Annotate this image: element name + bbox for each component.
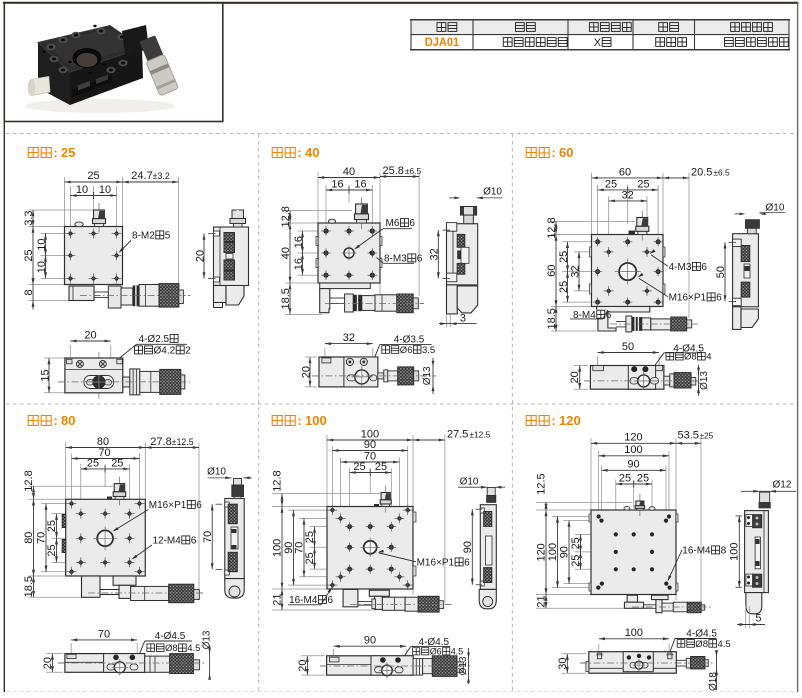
svg-text:5: 5 [755, 613, 761, 625]
svg-text:4.5: 4.5 [451, 647, 464, 657]
svg-text:Ø10: Ø10 [483, 187, 502, 198]
svg-text:120: 120 [624, 432, 642, 444]
svg-text:Ø10: Ø10 [766, 202, 785, 213]
svg-text:5: 5 [165, 231, 171, 242]
svg-text:12.5: 12.5 [536, 473, 548, 494]
svg-text:M6: M6 [386, 218, 400, 229]
svg-text:25: 25 [111, 457, 123, 469]
svg-text:24.7: 24.7 [131, 170, 152, 182]
svg-text:6: 6 [191, 536, 197, 547]
svg-text:6: 6 [716, 293, 722, 304]
svg-text:40: 40 [343, 166, 355, 178]
svg-text:6: 6 [464, 558, 470, 569]
svg-text:16-M4: 16-M4 [682, 546, 711, 557]
svg-text:±25: ±25 [700, 431, 714, 441]
svg-text:4: 4 [706, 352, 711, 363]
svg-text:21: 21 [272, 594, 284, 606]
svg-text:100: 100 [272, 539, 284, 557]
svg-text:25: 25 [61, 145, 75, 160]
svg-text::: : [552, 146, 556, 160]
svg-text:Ø13: Ø13 [458, 656, 469, 675]
svg-text:10: 10 [36, 261, 48, 273]
svg-text:60: 60 [619, 166, 631, 178]
svg-text:25: 25 [570, 537, 582, 549]
svg-text:±12.5: ±12.5 [172, 437, 194, 447]
svg-text:90: 90 [627, 459, 639, 471]
svg-text:8: 8 [721, 546, 727, 557]
svg-text:Ø12: Ø12 [773, 480, 792, 491]
svg-text:10: 10 [36, 239, 48, 251]
svg-text:25: 25 [637, 178, 649, 190]
svg-text:3.3: 3.3 [23, 211, 35, 226]
svg-text:8-M2: 8-M2 [132, 231, 155, 242]
svg-text:6: 6 [701, 262, 707, 273]
svg-text:±3.2: ±3.2 [153, 171, 170, 181]
svg-text::: : [54, 414, 58, 428]
svg-text:18.5: 18.5 [280, 288, 292, 309]
svg-text:Ø13: Ø13 [422, 366, 433, 385]
svg-text:12-M4: 12-M4 [153, 536, 182, 547]
svg-text:16: 16 [354, 179, 366, 191]
svg-text:4.5: 4.5 [187, 643, 200, 654]
svg-text:30: 30 [557, 658, 569, 670]
svg-text:20: 20 [194, 250, 206, 262]
svg-text:25: 25 [353, 461, 365, 473]
svg-text:70: 70 [98, 447, 110, 459]
svg-text:4-Ø4.5: 4-Ø4.5 [155, 631, 186, 642]
svg-text:±12.5: ±12.5 [470, 429, 491, 439]
svg-text:Ø8: Ø8 [695, 639, 708, 650]
svg-text:25: 25 [637, 472, 649, 484]
svg-text:120: 120 [559, 413, 581, 428]
svg-text:100: 100 [624, 444, 642, 456]
svg-text:16: 16 [293, 236, 305, 248]
svg-text:Ø13: Ø13 [699, 371, 710, 390]
svg-text:25: 25 [87, 457, 99, 469]
svg-text:25: 25 [46, 544, 58, 556]
svg-text:50: 50 [715, 266, 727, 278]
svg-text:10: 10 [76, 184, 88, 196]
svg-text:25: 25 [87, 170, 99, 182]
svg-text:6: 6 [196, 500, 202, 511]
svg-text:40: 40 [280, 247, 292, 259]
svg-text:25: 25 [558, 281, 570, 293]
svg-text:Ø13: Ø13 [202, 630, 213, 649]
svg-text:60: 60 [546, 265, 558, 277]
svg-text:25: 25 [605, 178, 617, 190]
svg-text:2: 2 [185, 346, 191, 357]
svg-text:18.5: 18.5 [546, 308, 558, 329]
svg-text:32: 32 [569, 265, 581, 277]
svg-text:100: 100 [547, 543, 559, 561]
svg-text:15: 15 [39, 369, 51, 381]
svg-text:4-Ø3.5: 4-Ø3.5 [394, 334, 425, 345]
svg-text:Ø18: Ø18 [708, 672, 719, 691]
svg-text:18.5: 18.5 [23, 576, 35, 597]
svg-text:10: 10 [99, 184, 111, 196]
svg-text:100: 100 [728, 543, 740, 561]
svg-text:40: 40 [305, 145, 319, 160]
svg-text:6: 6 [327, 595, 333, 606]
svg-text:4.5: 4.5 [718, 639, 731, 650]
svg-text:100: 100 [625, 627, 643, 639]
svg-text:70: 70 [98, 628, 110, 640]
svg-text:16: 16 [331, 179, 343, 191]
svg-text:Ø8: Ø8 [684, 352, 697, 363]
svg-text:25: 25 [558, 251, 570, 263]
svg-text:±6.5: ±6.5 [405, 166, 421, 176]
svg-text:90: 90 [364, 635, 376, 647]
svg-text:70: 70 [36, 532, 48, 544]
svg-text:20: 20 [297, 660, 309, 672]
svg-text::: : [54, 146, 58, 160]
svg-text:Ø6: Ø6 [430, 647, 442, 657]
svg-text:25.8: 25.8 [383, 165, 404, 177]
svg-text:20.5: 20.5 [691, 166, 712, 178]
svg-text:32: 32 [622, 189, 634, 201]
svg-text:27.5: 27.5 [447, 428, 468, 440]
svg-text:3.5: 3.5 [422, 345, 435, 356]
svg-text:Ø8: Ø8 [165, 643, 178, 654]
svg-text::: : [298, 414, 302, 428]
svg-text:25: 25 [619, 472, 631, 484]
svg-text:X: X [594, 37, 602, 49]
svg-text:25: 25 [23, 249, 35, 261]
svg-text:3: 3 [460, 313, 466, 325]
svg-text:90: 90 [559, 546, 571, 558]
svg-text:80: 80 [61, 413, 75, 428]
svg-text:M16×P1: M16×P1 [417, 558, 455, 569]
svg-text:12.8: 12.8 [272, 470, 284, 491]
svg-text:60: 60 [559, 145, 573, 160]
svg-text:M16×P1: M16×P1 [149, 500, 187, 511]
svg-text:M16×P1: M16×P1 [669, 293, 707, 304]
svg-text::: : [552, 414, 556, 428]
svg-text:120: 120 [536, 543, 548, 561]
svg-text:27.8: 27.8 [150, 436, 171, 448]
svg-text:32: 32 [343, 332, 355, 344]
svg-text:20: 20 [300, 366, 312, 378]
svg-text:50: 50 [622, 341, 634, 353]
svg-text:Ø6: Ø6 [400, 345, 413, 356]
svg-text:25: 25 [46, 520, 58, 532]
svg-text:25: 25 [304, 552, 316, 564]
svg-text:Ø10: Ø10 [460, 477, 479, 488]
svg-text:16: 16 [293, 258, 305, 270]
svg-text:70: 70 [202, 531, 214, 543]
svg-text:20: 20 [84, 330, 96, 342]
svg-text:±6.5: ±6.5 [714, 167, 730, 177]
svg-text:32: 32 [429, 248, 441, 260]
svg-text:DJA01: DJA01 [425, 37, 460, 49]
svg-text:25: 25 [304, 531, 316, 543]
svg-text:20: 20 [42, 657, 54, 669]
svg-text:25: 25 [375, 461, 387, 473]
svg-text:4-Ø2.5: 4-Ø2.5 [139, 334, 170, 345]
svg-text:20: 20 [569, 371, 581, 383]
svg-text:90: 90 [364, 439, 376, 451]
svg-text:12.8: 12.8 [23, 470, 35, 491]
svg-text:100: 100 [305, 413, 327, 428]
svg-text:80: 80 [23, 532, 35, 544]
svg-text:4-M3: 4-M3 [669, 262, 692, 273]
svg-text:8: 8 [23, 289, 35, 295]
svg-text:6: 6 [417, 254, 423, 265]
svg-text:Ø10: Ø10 [207, 467, 226, 478]
svg-text:21: 21 [536, 595, 548, 607]
svg-text::: : [298, 146, 302, 160]
svg-text:53.5: 53.5 [678, 430, 699, 442]
svg-text:6: 6 [409, 218, 415, 229]
svg-text:Ø4.2: Ø4.2 [154, 346, 176, 357]
svg-text:90: 90 [462, 541, 474, 553]
svg-text:25: 25 [570, 555, 582, 567]
